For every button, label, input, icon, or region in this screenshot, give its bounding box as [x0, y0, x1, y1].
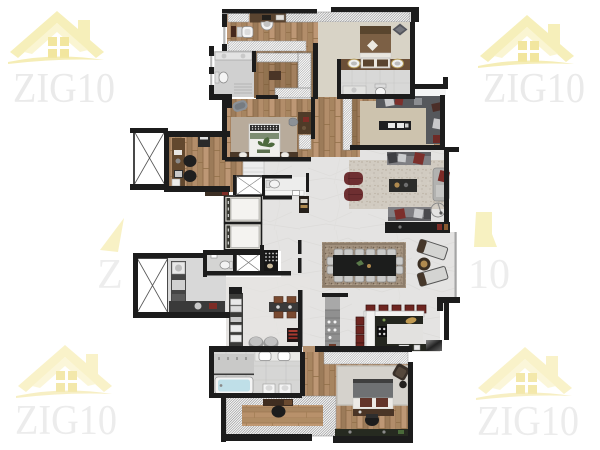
svg-text:ZIG10: ZIG10 [15, 398, 117, 444]
svg-text:ZIG10: ZIG10 [483, 66, 585, 112]
svg-text:Z: Z [97, 252, 123, 298]
svg-text:ZIG10: ZIG10 [13, 66, 115, 112]
svg-text:ZIG10: ZIG10 [477, 399, 579, 445]
svg-text:10: 10 [468, 252, 510, 298]
